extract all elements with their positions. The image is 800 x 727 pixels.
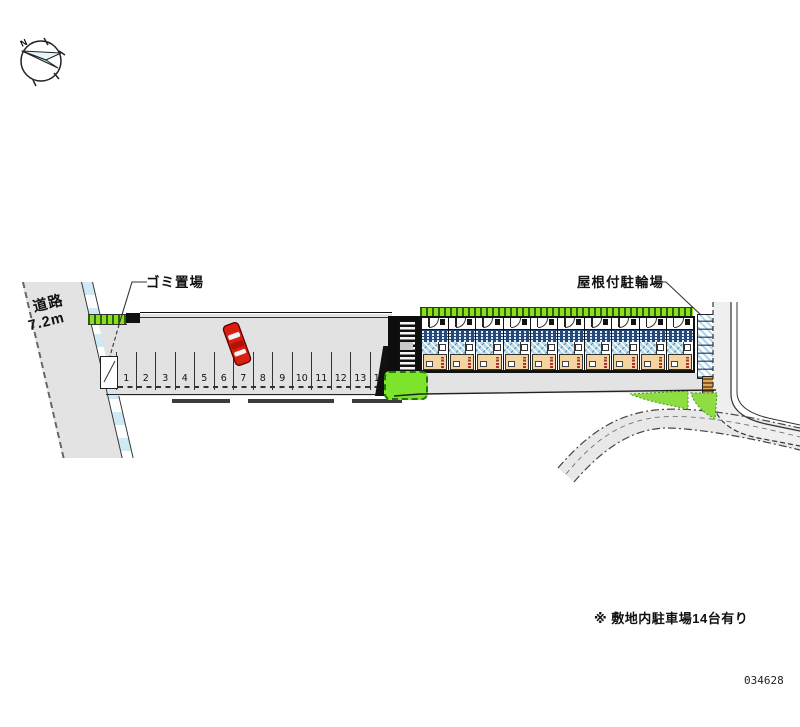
fixture-square — [466, 344, 473, 351]
apartment-unit — [504, 318, 531, 370]
vertical-road-surface — [713, 302, 800, 445]
parking-stall: 9 — [272, 352, 292, 390]
building-walkway — [390, 373, 715, 393]
room-number-mark — [523, 357, 526, 368]
kitchen-hatch — [504, 342, 521, 354]
unit-entrance — [667, 318, 693, 329]
unit-room — [559, 354, 583, 370]
unit-kitchen — [558, 342, 584, 354]
unit-room — [505, 354, 529, 370]
vertical-road-outer-line — [737, 302, 800, 425]
unit-room — [641, 354, 665, 370]
kitchen-hatch — [422, 342, 439, 354]
parking-stall: 3 — [155, 352, 175, 390]
unit-entrance — [476, 318, 502, 329]
hedge-strip — [88, 314, 127, 325]
door-swing-arc — [483, 318, 493, 328]
apartment-unit — [476, 318, 503, 370]
unit-entrance — [504, 318, 530, 329]
unit-bath-tiles — [667, 329, 693, 342]
vertical-road-left-edge — [713, 302, 800, 446]
plan-number: 034628 — [744, 674, 784, 687]
parking-stall: 10 — [292, 352, 312, 390]
closet-square — [562, 361, 569, 367]
apartment-unit — [640, 318, 667, 370]
parking-stall: 6 — [214, 352, 234, 390]
room-number-mark — [686, 357, 689, 368]
apartment-unit — [585, 318, 612, 370]
room-number-mark — [441, 357, 444, 368]
room-number-mark — [577, 357, 580, 368]
fixture-square — [602, 344, 609, 351]
unit-kitchen — [504, 342, 530, 354]
vertical-road-right-edge — [731, 302, 800, 431]
fixture-square — [548, 344, 555, 351]
unit-room — [450, 354, 474, 370]
parking-stall: 13 — [350, 352, 370, 390]
kitchen-hatch — [585, 342, 602, 354]
apartment-unit — [667, 318, 693, 370]
kitchen-hatch — [558, 342, 575, 354]
room-number-mark — [604, 357, 607, 368]
apartment-building — [420, 316, 695, 373]
kitchen-hatch — [531, 342, 548, 354]
grass-patch — [630, 391, 688, 409]
door-swing-arc — [456, 318, 466, 328]
kitchen-hatch — [449, 342, 466, 354]
garbage-area-label: ゴミ置場 — [146, 271, 204, 291]
unit-bath-tiles — [585, 329, 611, 342]
unit-room — [477, 354, 501, 370]
door-swing-arc — [619, 318, 629, 328]
curb-segment — [248, 399, 334, 403]
stall-dashed-line — [118, 386, 388, 388]
wall-segment — [126, 313, 140, 323]
kitchen-hatch — [612, 342, 629, 354]
stair-landing — [400, 342, 413, 350]
door-blob — [685, 319, 690, 325]
room-number-mark — [496, 357, 499, 368]
parking-stall: 4 — [175, 352, 195, 390]
door-blob — [576, 319, 581, 325]
fixture-square — [630, 344, 637, 351]
door-swing-arc — [429, 318, 439, 328]
unit-entrance — [531, 318, 557, 329]
unit-entrance — [449, 318, 475, 329]
parking-stall: 12 — [331, 352, 351, 390]
door-blob — [658, 319, 663, 325]
garbage-area-box — [100, 356, 118, 389]
unit-kitchen — [612, 342, 638, 354]
parking-stall: 1 — [116, 352, 136, 390]
fixture-square — [439, 344, 446, 351]
unit-room — [532, 354, 556, 370]
unit-room — [668, 354, 692, 370]
closet-square — [535, 361, 542, 367]
fixture-square — [521, 344, 528, 351]
unit-bath-tiles — [476, 329, 502, 342]
unit-kitchen — [476, 342, 502, 354]
door-blob — [549, 319, 554, 325]
parking-stall: 2 — [136, 352, 156, 390]
diagonal-road-surface — [558, 409, 800, 482]
fixture-square — [494, 344, 501, 351]
unit-kitchen — [585, 342, 611, 354]
kitchen-hatch — [640, 342, 657, 354]
fixture-square — [575, 344, 582, 351]
unit-entrance — [640, 318, 666, 329]
parking-count-note: ※ 敷地内駐車場14台有り — [594, 608, 748, 627]
site-plan: 道路 7.2m 1234567891011121314 ゴミ置場 屋根付駐輪場 … — [0, 0, 800, 727]
bicycle-parking-label: 屋根付駐輪場 — [577, 271, 664, 291]
unit-room — [586, 354, 610, 370]
closet-square — [426, 361, 433, 367]
room-number-mark — [468, 357, 471, 368]
parking-stall: 11 — [311, 352, 331, 390]
unit-bath-tiles — [612, 329, 638, 342]
bush — [384, 371, 428, 400]
door-blob — [495, 319, 500, 325]
apartment-unit — [531, 318, 558, 370]
unit-kitchen — [422, 342, 448, 354]
unit-bath-tiles — [531, 329, 557, 342]
unit-kitchen — [449, 342, 475, 354]
door-blob — [631, 319, 636, 325]
closet-square — [644, 361, 651, 367]
door-swing-arc — [565, 318, 575, 328]
parking-bottom-boundary — [106, 394, 394, 397]
closet-square — [616, 361, 623, 367]
door-blob — [440, 319, 445, 325]
diagonal-road-inner-line — [566, 417, 800, 474]
parking-stall: 5 — [194, 352, 214, 390]
closet-square — [480, 361, 487, 367]
room-number-mark — [632, 357, 635, 368]
unit-bath-tiles — [449, 329, 475, 342]
unit-room — [613, 354, 637, 370]
bicycle-parking-box — [697, 314, 714, 379]
diagonal-road-top-edge — [558, 409, 800, 468]
fixture-square — [684, 344, 691, 351]
diagonal-road-bottom-edge — [574, 428, 800, 482]
kitchen-hatch — [667, 342, 684, 354]
unit-bath-tiles — [558, 329, 584, 342]
unit-room — [423, 354, 447, 370]
parking-stalls: 1234567891011121314 — [116, 352, 390, 390]
unit-entrance — [558, 318, 584, 329]
unit-bath-tiles — [422, 329, 448, 342]
compass-icon: N — [19, 37, 65, 86]
apartment-unit — [449, 318, 476, 370]
unit-entrance — [612, 318, 638, 329]
door-swing-arc — [538, 318, 548, 328]
door-swing-arc — [647, 318, 657, 328]
room-number-mark — [659, 357, 662, 368]
door-blob — [467, 319, 472, 325]
parking-stall: 7 — [233, 352, 253, 390]
north-mark: N — [19, 37, 29, 49]
door-blob — [522, 319, 527, 325]
unit-bath-tiles — [640, 329, 666, 342]
apartment-unit — [422, 318, 449, 370]
door-swing-arc — [592, 318, 602, 328]
closet-square — [671, 361, 678, 367]
door-swing-arc — [674, 318, 684, 328]
parking-top-boundary — [140, 312, 392, 318]
parking-stall: 8 — [253, 352, 273, 390]
apartment-unit — [558, 318, 585, 370]
apartment-unit — [612, 318, 639, 370]
room-number-mark — [550, 357, 553, 368]
unit-kitchen — [667, 342, 693, 354]
unit-kitchen — [531, 342, 557, 354]
closet-square — [508, 361, 515, 367]
unit-entrance — [422, 318, 448, 329]
closet-square — [589, 361, 596, 367]
curb-segment — [172, 399, 230, 403]
kitchen-hatch — [476, 342, 493, 354]
unit-entrance — [585, 318, 611, 329]
meter-box — [702, 376, 717, 397]
unit-bath-tiles — [504, 329, 530, 342]
unit-kitchen — [640, 342, 666, 354]
fixture-square — [657, 344, 664, 351]
door-blob — [603, 319, 608, 325]
closet-square — [453, 361, 460, 367]
door-swing-arc — [511, 318, 521, 328]
